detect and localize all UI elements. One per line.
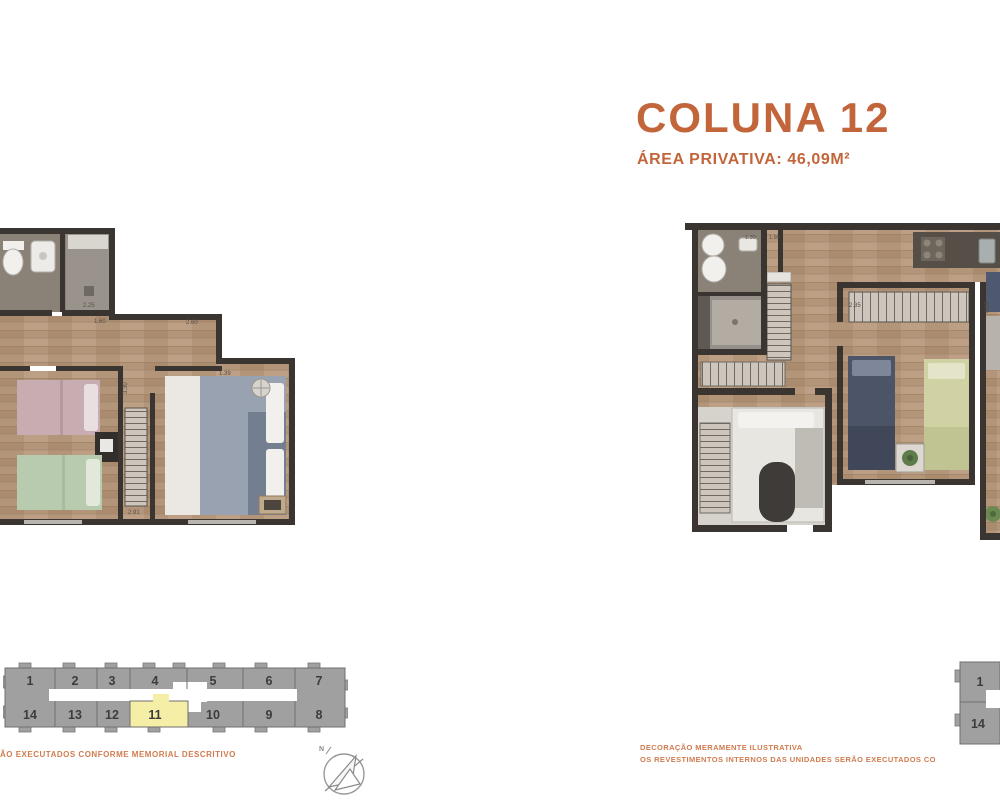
dim-label: 4.05 <box>985 301 991 313</box>
compass-north-label: N <box>319 746 324 753</box>
bathroom-left-plan <box>0 234 109 312</box>
key-plan-unit-6: 6 <box>266 674 273 688</box>
sink-drain <box>39 252 47 260</box>
key-plan-building <box>3 663 348 732</box>
floor-plan-right: 1.30 1.90 2.35 4.05 <box>685 218 1000 548</box>
key-plan-unit-9: 9 <box>266 708 273 722</box>
dim-label: 1.90 <box>769 235 780 241</box>
toilet-icon <box>3 249 23 275</box>
private-area-label: ÁREA PRIVATIVA: 46,09M² <box>637 151 850 169</box>
key-plan-unit-1: 1 <box>27 674 34 688</box>
pink-bed-pillow <box>84 384 98 431</box>
disclaimer-right-line2: OS REVESTIMENTOS INTERNOS DAS UNIDADES S… <box>640 754 1000 766</box>
dim-label: 1.39 <box>219 371 231 377</box>
dim-label: 1.30 <box>745 235 756 241</box>
dim-label: 2.35 <box>849 303 861 309</box>
dim-label: 2.60 <box>186 320 198 326</box>
shower-drain <box>84 286 94 296</box>
key-plan-unit-13: 13 <box>68 708 82 722</box>
brochure-page: COLUNA 12 ÁREA PRIVATIVA: 46,09M² <box>0 0 1000 800</box>
navy-bed-pillow <box>852 360 891 376</box>
kitchen-sink-icon <box>979 239 995 263</box>
key-plan-unit-11: 11 <box>148 708 161 722</box>
disclaimer-right-line1: DECORAÇÃO MERAMENTE ILUSTRATIVA <box>640 742 1000 754</box>
disclaimer-left: ÃO EXECUTADOS CONFORME MEMORIAL DESCRITI… <box>0 750 236 759</box>
window <box>188 520 256 524</box>
green-bed-pillow <box>86 459 100 506</box>
bedroom1-furniture <box>165 376 286 515</box>
key-plan: 1 2 3 4 5 6 7 14 13 12 11 10 9 8 <box>3 658 348 743</box>
sideboard <box>701 362 785 386</box>
hall-closet <box>767 284 791 360</box>
pillow <box>738 412 814 428</box>
key-plan-unit-14: 14 <box>23 708 37 722</box>
dim-label: 3.30 <box>123 382 129 394</box>
disclaimer-right: DECORAÇÃO MERAMENTE ILUSTRATIVA OS REVES… <box>640 742 1000 766</box>
dim-label: 1.60 <box>94 319 106 325</box>
key-plan-unit-3: 3 <box>109 674 116 688</box>
key-plan-unit-2: 2 <box>72 674 79 688</box>
key-plan-unit-5: 5 <box>210 674 217 688</box>
shower-tray <box>68 235 108 249</box>
wardrobe <box>700 423 730 513</box>
key-plan-unit-4: 4 <box>152 674 159 688</box>
dim-label: 2.25 <box>83 303 95 309</box>
wardrobe <box>849 292 969 322</box>
yellow-bed-pillow <box>928 363 965 379</box>
bathroom-right-plan <box>698 230 761 349</box>
toilet-icon <box>702 256 726 282</box>
window <box>24 520 82 524</box>
key-plan-unit-10: 10 <box>206 708 220 722</box>
key-plan-unit-7: 7 <box>316 674 323 688</box>
key-plan-unit-12: 12 <box>105 708 119 722</box>
floor-plan-left: 2.25 1.60 2.60 1.39 2.91 3.30 <box>0 218 350 528</box>
living-floor <box>0 316 216 366</box>
key-plan-unit-8: 8 <box>316 708 323 722</box>
toilet-tank <box>702 234 724 256</box>
key-plan-right-unit-14: 14 <box>971 717 985 731</box>
hall-closet <box>125 408 147 506</box>
bath-divider-wall <box>60 234 65 312</box>
key-plan-right-unit-1: 1 <box>977 675 984 689</box>
twin-bedroom <box>843 288 969 479</box>
window <box>865 480 935 484</box>
dark-throw <box>759 462 795 522</box>
compass: N <box>312 738 370 800</box>
page-title: COLUNA 12 <box>636 94 890 142</box>
dim-label: 2.91 <box>128 510 140 516</box>
master-bedroom <box>698 395 825 525</box>
shower-drain <box>732 319 738 325</box>
kitchen-counter <box>913 232 1000 268</box>
